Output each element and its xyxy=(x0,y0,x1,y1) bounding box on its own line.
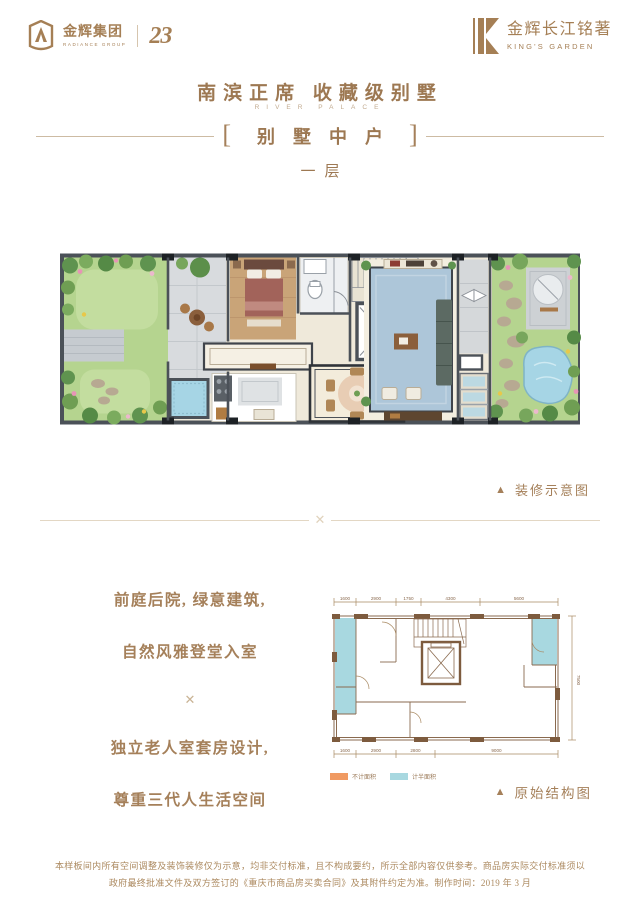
unit-type-label: 别墅中户 xyxy=(239,123,401,151)
intro-line-1: 前庭后院, 绿意建筑, xyxy=(70,588,310,610)
wardrobe-console xyxy=(204,344,312,370)
page-subtitle-en: RIVER PALACE xyxy=(0,104,640,111)
cyan-zone-left xyxy=(335,618,356,714)
legend-label-cyan: 计半面积 xyxy=(412,772,436,781)
bed-bench xyxy=(247,320,281,327)
dim-top-labels: 1600 2900 1750 4300 5600 xyxy=(340,596,525,601)
foyer xyxy=(460,260,488,420)
intro-copy: 前庭后院, 绿意建筑, 自然风雅登堂入室 ✕ 独立老人室套房设计, 尊重三代人生… xyxy=(70,588,310,840)
legend-label-orange: 不计面积 xyxy=(352,772,376,781)
triangle-marker-icon: ▲ xyxy=(495,786,508,798)
kings-garden-name: 金辉长江铭著 xyxy=(507,21,612,39)
rule-left xyxy=(36,136,214,137)
bedroom xyxy=(230,258,296,340)
kings-garden-logo: 金辉长江铭著 KING'S GARDEN xyxy=(473,18,612,54)
dim-bottom xyxy=(334,750,558,758)
rear-garden xyxy=(489,254,581,423)
living-room xyxy=(361,260,460,421)
bracket-left: [ xyxy=(214,122,239,151)
radiance-group-logo: 金辉集团 RADIANCE GROUP 23 xyxy=(26,20,171,52)
bed xyxy=(245,279,283,317)
legend-item-orange: 不计面积 xyxy=(330,772,376,781)
radiance-group-name: 金辉集团 xyxy=(63,26,126,40)
bed-headboard xyxy=(244,260,284,270)
dim-bottom-labels: 1600 2900 2800 9000 xyxy=(340,748,502,753)
dim-right-label: 7500 xyxy=(576,675,581,686)
disclaimer-line-1: 本样板间内所有空间调整及装饰装修仅为示意，均非交付标准，且不构成要约，所示全部内… xyxy=(40,858,600,875)
kitchen xyxy=(212,374,296,422)
decorated-floor-plan-svg xyxy=(54,250,586,428)
svg-text:9000: 9000 xyxy=(491,748,502,753)
pond xyxy=(524,347,572,404)
svg-text:2900: 2900 xyxy=(371,748,382,753)
bathroom xyxy=(300,258,348,314)
kings-garden-en: KING'S GARDEN xyxy=(507,42,612,51)
sink xyxy=(254,410,274,420)
disclaimer-line-2: 政府最终批准文件及双方签订的《重庆市商品房买卖合同》及其附件约定为准。制作时间：… xyxy=(40,875,600,892)
svg-text:5600: 5600 xyxy=(514,596,525,601)
intro-ornament: ✕ xyxy=(70,692,310,708)
legend-item-cyan: 计半面积 xyxy=(390,772,436,781)
decorated-floor-plan xyxy=(54,250,586,428)
structural-plan-caption: ▲ 原始结构图 xyxy=(495,782,592,802)
decor-caption-label: 装修示意图 xyxy=(515,480,590,499)
rule-right xyxy=(426,136,604,137)
svg-text:4300: 4300 xyxy=(445,596,456,601)
radiance-group-en: RADIANCE GROUP xyxy=(63,42,126,47)
divider-rule-left xyxy=(40,520,309,521)
section-divider: ✕ xyxy=(40,512,600,528)
sofa xyxy=(436,300,452,386)
legend-swatch-cyan xyxy=(390,773,408,780)
svg-text:1600: 1600 xyxy=(340,748,351,753)
divider-ornament: ✕ xyxy=(309,512,332,528)
intro-line-3: 独立老人室套房设计, xyxy=(70,736,310,758)
logo-divider xyxy=(137,25,138,47)
dim-right xyxy=(568,616,576,740)
structural-plan-svg: 1600 2900 1750 4300 5600 xyxy=(318,592,594,767)
intro-line-4: 尊重三代人生活空间 xyxy=(70,788,310,810)
unit-type-row: [ 别墅中户 ] xyxy=(0,122,640,151)
armchair xyxy=(406,388,421,400)
triangle-marker-icon: ▲ xyxy=(495,484,508,496)
structural-floor-plan: 1600 2900 1750 4300 5600 xyxy=(318,592,594,767)
svg-text:1750: 1750 xyxy=(403,596,414,601)
svg-text:2900: 2900 xyxy=(371,596,382,601)
svg-text:1600: 1600 xyxy=(340,596,351,601)
front-garden xyxy=(61,255,168,425)
anniversary-23-badge: 23 xyxy=(149,24,171,48)
structural-caption-label: 原始结构图 xyxy=(515,782,593,802)
radiance-shield-icon xyxy=(26,20,56,52)
divider-rule-right xyxy=(331,520,600,521)
structural-legend: 不计面积 计半面积 xyxy=(330,772,436,781)
struct-elevator xyxy=(422,642,460,684)
page-title: 南滨正席 收藏级别墅 xyxy=(0,78,640,105)
legend-swatch-orange xyxy=(330,773,348,780)
bracket-right: ] xyxy=(401,122,426,151)
cyan-zone-right xyxy=(532,619,557,665)
kings-garden-k-icon xyxy=(473,18,499,54)
disclaimer: 本样板间内所有空间调整及装饰装修仅为示意，均非交付标准，且不构成要约，所示全部内… xyxy=(40,858,600,892)
decor-plan-caption: ▲ 装修示意图 xyxy=(495,480,590,499)
armchair xyxy=(382,388,397,400)
vanity xyxy=(304,260,326,274)
floor-label: 一层 xyxy=(0,160,640,181)
intro-line-2: 自然风雅登堂入室 xyxy=(70,640,310,662)
water-courtyard xyxy=(170,380,208,418)
svg-text:2800: 2800 xyxy=(410,748,421,753)
patio-tree xyxy=(190,258,210,278)
